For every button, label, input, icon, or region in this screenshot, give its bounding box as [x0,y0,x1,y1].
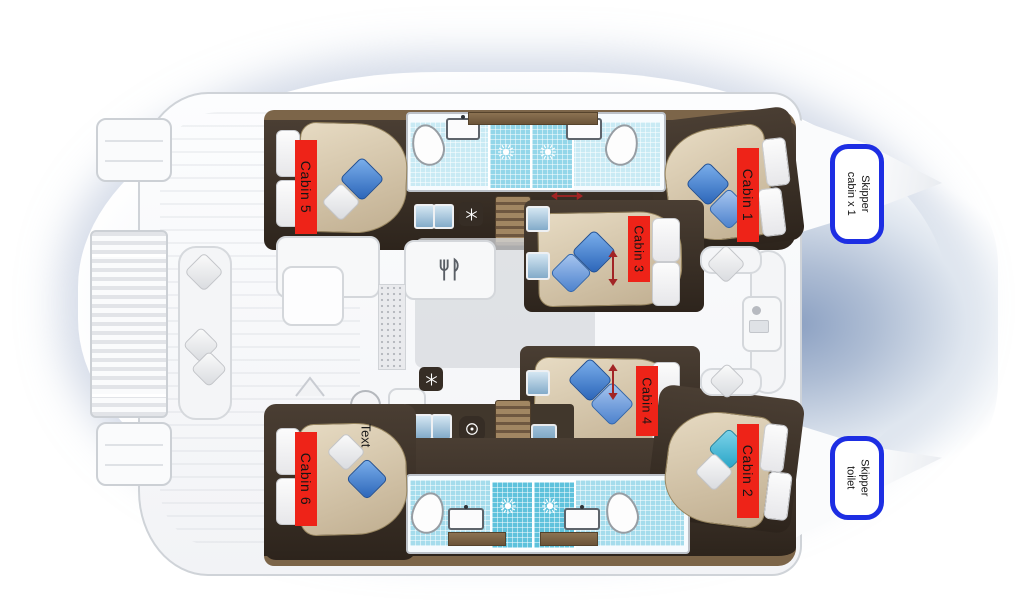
freezer-box [459,202,483,226]
snowflake-icon [424,372,439,387]
transom-step-top [96,118,172,182]
sink [564,508,600,530]
cabin-6-label: Cabin 6 [295,432,317,526]
console-panel [749,320,769,333]
step-line [105,444,163,446]
cabin-washbasin [526,206,550,232]
cabin-2-label: Cabin 2 [737,424,759,518]
sun-icon [538,142,558,162]
cabin-3-label-text: Cabin 3 [632,225,646,272]
bathroom-cabinet [468,112,598,125]
galley-sink [433,204,454,229]
cabin-5-label: Cabin 5 [295,140,317,234]
skipper-cabin-line1: Skipper [857,172,871,216]
skipper-toilet-line1: Skipper [857,459,871,496]
vanity-cabinet [448,532,506,546]
galley-icon [436,255,464,285]
cabin-4-label: Cabin 4 [636,366,658,436]
transom-step-bottom [96,422,172,486]
cabin-1-label-text: Cabin 1 [740,169,756,221]
galley-mat [378,284,406,370]
cabin-2-label-text: Cabin 2 [740,445,756,497]
placeholder-text-label: Text [359,423,374,447]
step-line [105,140,163,142]
step-line [105,160,163,162]
sun-icon [496,142,516,162]
cabin-1-label: Cabin 1 [737,148,759,242]
sun-icon [498,496,518,516]
skipper-toilet-line2: toilet [843,459,857,496]
skipper-toilet-label: Skipper toilet [830,436,884,520]
skipper-cabin-label: Skipper cabin x 1 [830,144,884,244]
galley-sink [414,204,435,229]
cabin-4-label-text: Cabin 4 [640,377,654,424]
galley-island [404,240,496,300]
galley-sink [431,414,452,440]
cabin-3-label: Cabin 3 [628,216,650,282]
cabin-5-label-text: Cabin 5 [298,161,314,213]
washer-icon [463,420,481,438]
up-arrow-icon [290,370,330,400]
cabin-6-label-text: Cabin 6 [298,453,314,505]
skipper-cabin-line2: cabin x 1 [843,172,857,216]
step-line [105,464,163,466]
snowflake-icon [464,207,479,222]
fridge-box [419,367,443,391]
skipper-cabin-label-text: Skipper cabin x 1 [843,172,871,216]
salon-table [282,266,344,326]
vanity-cabinet [540,532,598,546]
skipper-toilet-label-text: Skipper toilet [843,459,871,496]
grating-divider [92,254,166,257]
double-arrow-icon [608,364,618,400]
placeholder-text: Text [344,410,388,460]
sun-icon [540,496,560,516]
cabin-washbasin [526,370,550,396]
double-arrow-icon [608,250,618,286]
grating-divider [92,394,166,397]
deck-plan-canvas: Text Cabin 5 Cabin 1 Cabin 3 Cabin 4 Cab… [0,0,1024,600]
console-knob [752,306,761,315]
pillow [652,218,680,262]
pillow [652,262,680,306]
aft-platform-grating [90,230,168,418]
sink [448,508,484,530]
cabin-washbasin [526,252,550,280]
